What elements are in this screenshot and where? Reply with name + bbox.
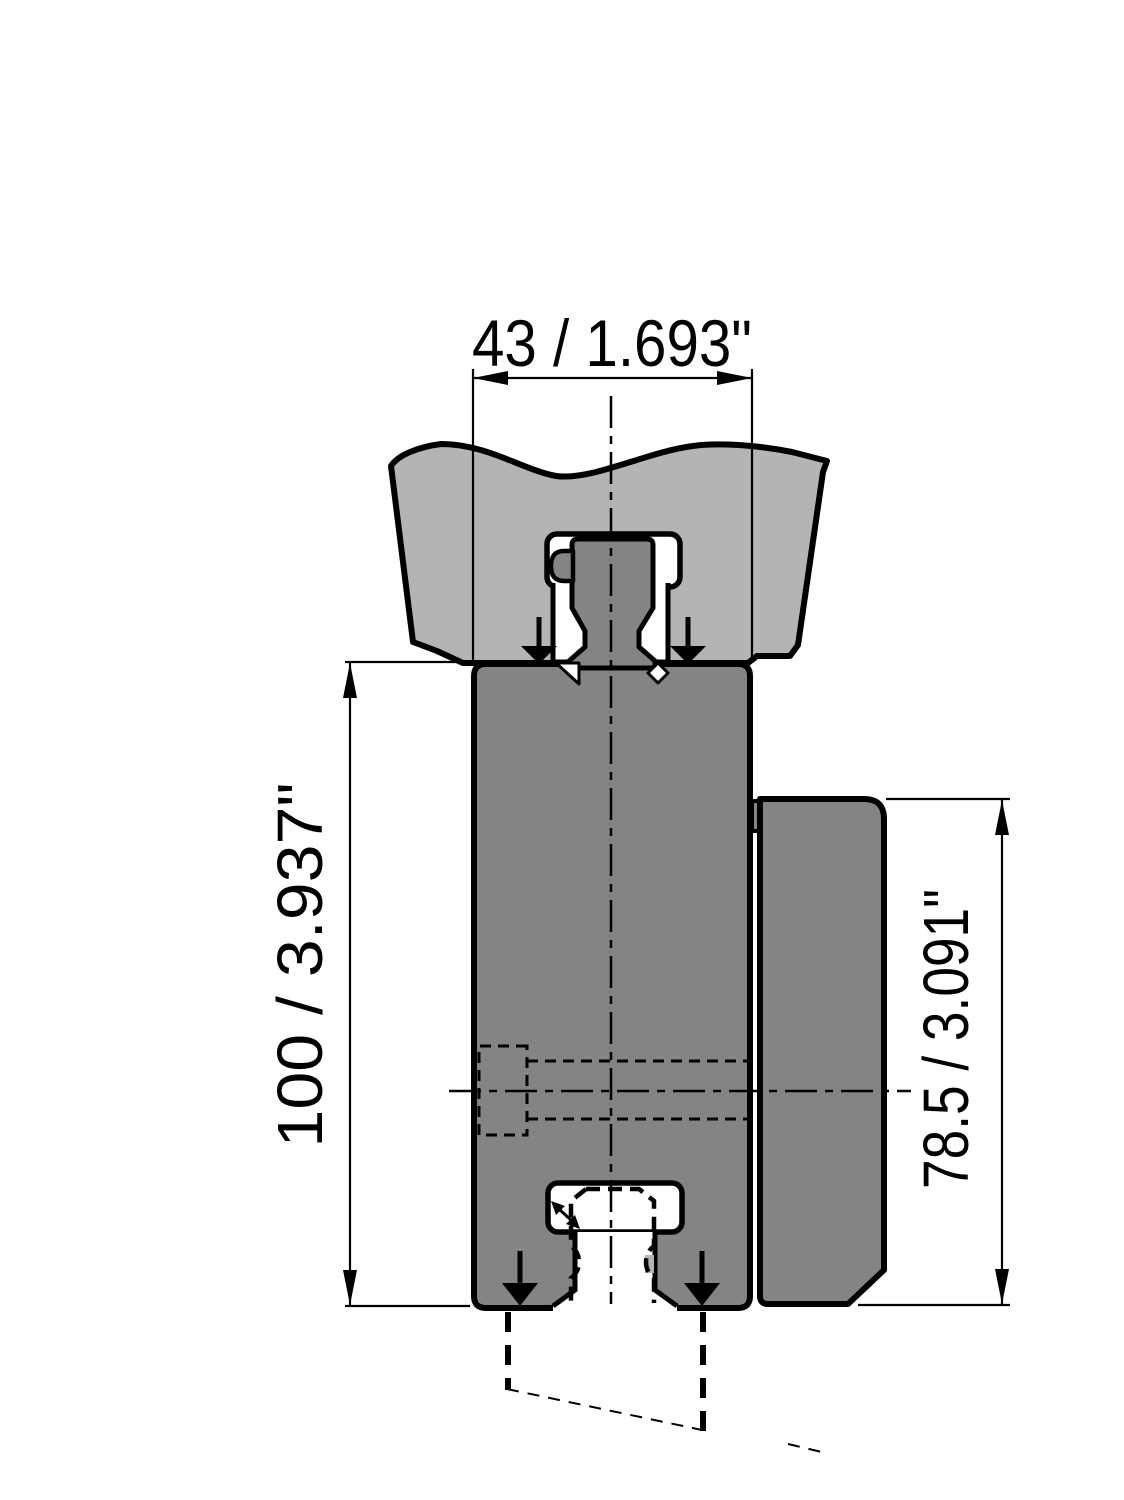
technical-drawing-canvas: 43 / 1.693" 100 / 3.937" 78.5 / 3.091" [0,0,1124,1500]
safety-click-button [551,551,573,581]
dim-arrow [995,800,1009,835]
dimension-width-label: 43 / 1.693" [472,306,752,380]
dim-arrow [343,663,357,698]
dimension-total-height-label: 100 / 3.937" [264,783,336,1148]
dim-arrow [343,1270,357,1305]
dimension-side-height-label: 78.5 / 3.091" [910,889,982,1189]
dimension-total-height: 100 / 3.937" [264,662,470,1306]
dim-arrow [995,1269,1009,1304]
phantom-die-slant [507,1389,826,1453]
drawing-svg: 43 / 1.693" 100 / 3.937" 78.5 / 3.091" [0,0,1124,1500]
side-block [760,799,884,1304]
